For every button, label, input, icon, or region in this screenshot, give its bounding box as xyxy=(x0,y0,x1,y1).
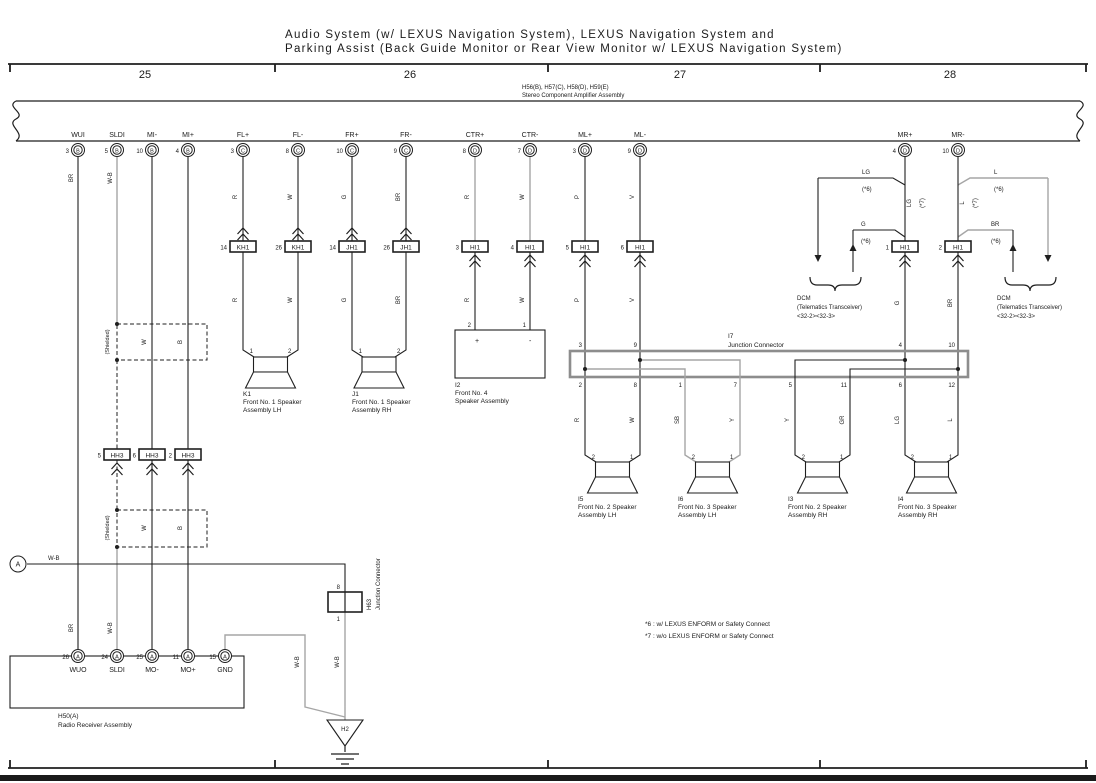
note-star6: *6 : w/ LEXUS ENFORM or Safety Connect xyxy=(645,621,770,628)
amplifier-left-tear xyxy=(13,101,19,141)
wire-color-label: W xyxy=(142,339,148,345)
amplifier-pins: WUI3B SLDI5B MI-10B MI+4B FL+3C FL-8C FR… xyxy=(66,132,966,157)
connector-label: HI1 xyxy=(900,245,911,252)
connector-5-hi1: HI15 xyxy=(566,241,598,267)
pin-num: 15 xyxy=(209,655,216,661)
amp-pin-fr-minus: FR-9C xyxy=(394,132,413,157)
pin-num: 10 xyxy=(336,149,343,155)
wire-color-label: P xyxy=(575,298,581,302)
connector-26-jh1: JH126 xyxy=(383,228,419,252)
speaker-name: Assembly RH xyxy=(352,407,392,414)
pin-num: 25 xyxy=(136,655,143,661)
speaker-ref: J1 xyxy=(352,391,359,398)
junction-pin: 8 xyxy=(634,383,638,389)
amplifier-name: Stereo Component Amplifier Assembly xyxy=(522,93,624,99)
wire-color-label: W xyxy=(142,525,148,531)
connector-label: HI1 xyxy=(470,245,481,252)
pin-name: ML- xyxy=(634,132,647,139)
wire-variant-label: (*6) xyxy=(991,239,1001,245)
speaker-pin: 2 xyxy=(692,455,696,461)
radio-name: Radio Receiver Assembly xyxy=(58,722,133,729)
wire-color-label: R xyxy=(465,194,471,199)
connector-label: HH3 xyxy=(110,453,123,460)
junction-pin: 4 xyxy=(899,343,903,349)
pin-name: MI+ xyxy=(182,132,194,139)
wire-color-label: R xyxy=(233,297,239,302)
dcm-label: (Telematics Transceiver) xyxy=(997,305,1062,311)
pin-num: 3 xyxy=(231,149,235,155)
connector-label: HH3 xyxy=(181,453,194,460)
wire-color-label: W xyxy=(288,194,294,200)
speaker-ref: I2 xyxy=(455,382,461,389)
speaker-name: Assembly LH xyxy=(243,407,282,414)
wire-color-label: V xyxy=(630,195,636,199)
connector-label: KH1 xyxy=(292,245,305,252)
speaker-i4: 2 1 I4 Front No. 3 Speaker Assembly RH xyxy=(898,455,957,519)
wire-color-label: R xyxy=(465,297,471,302)
amp-pin-mr-minus: MR-10D xyxy=(942,132,965,157)
speaker-i3: 2 1 I3 Front No. 2 Speaker Assembly RH xyxy=(788,455,848,519)
wires-black xyxy=(27,157,1013,649)
pin-num: 7 xyxy=(518,149,522,155)
speaker-pin: 1 xyxy=(730,455,734,461)
amp-pin-fl-plus: FL+3C xyxy=(231,132,250,157)
wire-color-label: W xyxy=(630,417,636,423)
connector-2-hh3: HH32 xyxy=(169,449,201,475)
junction-internal-gray xyxy=(585,360,740,462)
diagram-canvas: Audio System (w/ LEXUS Navigation System… xyxy=(0,0,1096,783)
pin-name: FR+ xyxy=(345,132,358,139)
circuit-reference-a: A xyxy=(10,556,26,572)
junction-pin: 3 xyxy=(579,343,583,349)
pin-letter: A xyxy=(223,654,227,660)
wire-color-label: L xyxy=(948,418,954,422)
pin-name: FL+ xyxy=(237,132,249,139)
connector-pin: 2 xyxy=(169,454,173,460)
junction-pin: 9 xyxy=(634,343,638,349)
wire-color-label: Y xyxy=(730,418,736,422)
wire-color-label: W-B xyxy=(108,172,114,184)
wire-color-label: G xyxy=(342,297,348,302)
wiring-diagram-page: Audio System (w/ LEXUS Navigation System… xyxy=(0,0,1096,783)
wire-color-label: G xyxy=(895,300,901,305)
bottom-border xyxy=(0,775,1096,781)
amp-pin-mr-plus: MR+4D xyxy=(893,132,913,157)
connector-5-hh3: HH35 xyxy=(98,449,130,475)
pin-name: MI- xyxy=(147,132,158,139)
pin-letter: A xyxy=(115,654,119,660)
wire-color-label: LG xyxy=(907,199,913,207)
junction-pin: 6 xyxy=(899,383,903,389)
h63-ref: H63 xyxy=(367,598,373,610)
speaker-pin: 2 xyxy=(802,455,806,461)
pin-letter: D xyxy=(528,148,532,154)
connector-4-hi1: HI14 xyxy=(511,241,543,267)
wire-color-label: Y xyxy=(785,418,791,422)
speaker-name: Front No. 3 Speaker xyxy=(678,504,737,511)
junction-internal-black xyxy=(795,360,958,462)
speaker-j1: 1 2 J1 Front No. 1 Speaker Assembly RH xyxy=(352,349,411,414)
pin-name: ML+ xyxy=(578,132,592,139)
h63-pin: 1 xyxy=(337,617,341,623)
speaker-pin: 1 xyxy=(250,349,254,355)
speaker-pin: 2 xyxy=(468,323,472,329)
pin-letter: B xyxy=(115,148,119,154)
h63-pin: 8 xyxy=(337,585,341,591)
wire-color-label: W-B xyxy=(295,656,301,668)
pin-name: CTR- xyxy=(522,132,539,139)
pin-name: FL- xyxy=(293,132,304,139)
speaker-name: Front No. 2 Speaker xyxy=(788,504,847,511)
wire-variant-label: (*7) xyxy=(973,198,979,208)
pin-name: FR- xyxy=(400,132,412,139)
junction-pin: 12 xyxy=(948,383,955,389)
wire-color-label: R xyxy=(233,194,239,199)
pin-name: GND xyxy=(217,667,233,674)
pin-num: 4 xyxy=(893,149,897,155)
connector-pin: 1 xyxy=(886,246,890,252)
pin-letter: D xyxy=(583,148,587,154)
amp-pin-ctr-minus: CTR-7D xyxy=(518,132,539,157)
pin-letter: B xyxy=(150,148,154,154)
wire-color-label: P xyxy=(575,195,581,199)
amp-pin-ctr-plus: CTR+8D xyxy=(463,132,485,157)
speaker-ref: I3 xyxy=(788,496,794,503)
connector-pin: 6 xyxy=(133,454,137,460)
connector-14-kh1: KH114 xyxy=(220,228,256,252)
pin-num: 10 xyxy=(942,149,949,155)
page-title-line1: Audio System (w/ LEXUS Navigation System… xyxy=(285,29,775,41)
junction-pin: 5 xyxy=(789,383,793,389)
column-number-27: 27 xyxy=(674,69,686,81)
connector-label: KH1 xyxy=(237,245,250,252)
junction-pin: 1 xyxy=(679,383,683,389)
junction-pin: 2 xyxy=(579,383,583,389)
pin-letter: D xyxy=(956,148,960,154)
connector-pin: 5 xyxy=(566,246,570,252)
amp-pin-mi-plus: MI+4B xyxy=(176,132,195,157)
speaker-pin: 2 xyxy=(911,455,915,461)
pin-name: MR- xyxy=(951,132,965,139)
connector-pin: 14 xyxy=(329,246,336,252)
ground-h2: H2 xyxy=(327,720,363,764)
pin-name: MR+ xyxy=(898,132,913,139)
pin-num: 24 xyxy=(101,655,108,661)
dcm-page-ref: <32-2><32-3> xyxy=(797,314,836,320)
speaker-pin: 1 xyxy=(840,455,844,461)
wire-variant-label: (*7) xyxy=(920,198,926,208)
page-title-line2: Parking Assist (Back Guide Monitor or Re… xyxy=(285,43,843,55)
amplifier-band xyxy=(16,101,1080,141)
pin-num: 3 xyxy=(66,149,70,155)
connector-pin: 14 xyxy=(220,246,227,252)
wire-color-label: B xyxy=(178,526,184,530)
pin-num: 10 xyxy=(136,149,143,155)
connector-pin: 2 xyxy=(939,246,943,252)
pin-name: SLDI xyxy=(109,132,125,139)
wire-color-label: B xyxy=(178,340,184,344)
speaker-name: Assembly LH xyxy=(678,512,717,519)
speaker-name: Assembly LH xyxy=(578,512,617,519)
wire-color-label: G xyxy=(861,222,866,228)
radio-receiver-assembly: 26AWUO 24ASLDI 25AMO- 11AMO+ 15AGND H50(… xyxy=(10,650,244,730)
connector-pin: 6 xyxy=(621,246,625,252)
wire-color-label: LG xyxy=(862,170,870,176)
pin-name: WUO xyxy=(69,667,87,674)
amp-pin-ml-minus: ML-9D xyxy=(628,132,647,157)
wire-variant-label: (*6) xyxy=(994,187,1004,193)
radio-ref: H50(A) xyxy=(58,713,79,720)
column-number-26: 26 xyxy=(404,69,416,81)
h63-junction-connector: 8 1 H63 Junction Connector xyxy=(328,558,382,623)
wire-color-label: V xyxy=(630,298,636,302)
speaker-name: Speaker Assembly xyxy=(455,398,510,405)
wire-color-label: BR xyxy=(396,295,402,304)
h63-name: Junction Connector xyxy=(376,558,382,610)
top-ruler xyxy=(8,64,1088,72)
connector-1-hi1: HI11 xyxy=(886,241,918,267)
connector-26-kh1: KH126 xyxy=(275,228,311,252)
dcm-brace xyxy=(810,277,861,291)
junction-pin: 11 xyxy=(841,383,848,389)
amp-pin-ml-plus: ML+3D xyxy=(573,132,592,157)
polarity-plus: + xyxy=(475,338,479,345)
connector-pin: 26 xyxy=(383,246,390,252)
shield-box-upper xyxy=(117,324,207,360)
wire-color-label: L xyxy=(994,170,998,176)
connector-label: HI1 xyxy=(953,245,964,252)
speaker-ref: I4 xyxy=(898,496,904,503)
speaker-ref: I5 xyxy=(578,496,584,503)
connector-6-hh3: HH36 xyxy=(133,449,165,475)
pin-letter: A xyxy=(150,654,154,660)
wire-color-label: BR xyxy=(396,192,402,201)
connector-label: JH1 xyxy=(400,245,412,252)
wire-color-label: SB xyxy=(675,416,681,424)
pin-letter: D xyxy=(903,148,907,154)
pin-letter: C xyxy=(350,148,354,154)
pin-num: 8 xyxy=(286,149,290,155)
notes: *6 : w/ LEXUS ENFORM or Safety Connect *… xyxy=(645,621,774,640)
dcm-label: DCM xyxy=(997,296,1011,302)
pin-num: 9 xyxy=(394,149,398,155)
pin-letter: C xyxy=(241,148,245,154)
wire-color-label: LG xyxy=(895,416,901,424)
speaker-name: Assembly RH xyxy=(898,512,938,519)
speaker-pin: 1 xyxy=(359,349,363,355)
pin-num: 26 xyxy=(62,655,69,661)
amp-pin-fr-plus: FR+10C xyxy=(336,132,358,157)
wire-variant-label: (*6) xyxy=(862,187,872,193)
amp-pin-mi-minus: MI-10B xyxy=(136,132,158,157)
wire-color-label: L xyxy=(960,201,966,205)
pin-num: 8 xyxy=(463,149,467,155)
junction-name: Junction Connector xyxy=(728,342,785,349)
speaker-ref: I6 xyxy=(678,496,684,503)
wire-color-label: W xyxy=(288,297,294,303)
pin-name: MO- xyxy=(145,667,159,674)
pin-letter: C xyxy=(296,148,300,154)
wire-color-label: W-B xyxy=(108,622,114,634)
pin-name: CTR+ xyxy=(466,132,484,139)
pin-name: SLDI xyxy=(109,667,125,674)
pin-num: 3 xyxy=(573,149,577,155)
pin-letter: B xyxy=(76,148,80,154)
junction-pin: 10 xyxy=(948,343,955,349)
connector-label: HH3 xyxy=(145,453,158,460)
amp-pin-fl-minus: FL-8C xyxy=(286,132,305,157)
connector-pin: 5 xyxy=(98,454,102,460)
wire-variant-label: (*6) xyxy=(861,239,871,245)
connector-label: HI1 xyxy=(635,245,646,252)
speaker-ref: K1 xyxy=(243,391,251,398)
wire-color-label: G xyxy=(342,194,348,199)
pin-name: MO+ xyxy=(180,667,195,674)
speaker-i2: 2 1 + - I2 Front No. 4 Speaker Assembly xyxy=(455,323,545,405)
column-number-25: 25 xyxy=(139,69,151,81)
pin-letter: A xyxy=(186,654,190,660)
connector-pin: 4 xyxy=(511,246,515,252)
wire-color-label: W-B xyxy=(335,656,341,668)
speaker-name: Front No. 3 Speaker xyxy=(898,504,957,511)
circuit-a-label: A xyxy=(16,562,21,569)
amp-pin-wui: WUI3B xyxy=(66,132,85,157)
wire-color-label: W-B xyxy=(48,556,60,562)
bottom-ruler xyxy=(8,760,1088,768)
junction-connector-i7: I7 Junction Connector 3 9 4 10 2 8 1 7 5… xyxy=(570,333,968,462)
speaker-name: Front No. 2 Speaker xyxy=(578,504,637,511)
connector-2-hi1: HI12 xyxy=(939,241,971,267)
dcm-right: DCM (Telematics Transceiver) <32-2><32-3… xyxy=(997,244,1062,320)
speaker-pin: 1 xyxy=(523,323,527,329)
wire-color-label: W xyxy=(520,194,526,200)
column-number-28: 28 xyxy=(944,69,956,81)
pin-letter: A xyxy=(76,654,80,660)
stereo-component-amplifier: H56(B), H57(C), H58(D), H59(E) Stereo Co… xyxy=(13,85,1083,141)
header: Audio System (w/ LEXUS Navigation System… xyxy=(8,29,1088,81)
speaker-name: Assembly RH xyxy=(788,512,828,519)
connector-pin: 26 xyxy=(275,246,282,252)
connector-3-hi1: HI13 xyxy=(456,241,488,267)
dcm-brace xyxy=(1005,277,1056,291)
wire-color-label: R xyxy=(575,417,581,422)
wire-color-label: BR xyxy=(69,623,75,632)
shielded-label: (Shielded) xyxy=(105,515,111,540)
ground-ref: H2 xyxy=(341,727,349,733)
amplifier-right-tear xyxy=(1077,101,1083,141)
connector-label: HI1 xyxy=(580,245,591,252)
connector-label: HI1 xyxy=(525,245,536,252)
wire-color-label: GR xyxy=(840,415,846,425)
shielded-label: (Shielded) xyxy=(105,329,111,354)
amp-pin-sldi: SLDI5B xyxy=(105,132,125,157)
speaker-pin: 2 xyxy=(592,455,596,461)
shield-box-lower xyxy=(117,510,207,547)
pin-num: 5 xyxy=(105,149,109,155)
dcm-left: DCM (Telematics Transceiver) <32-2><32-3… xyxy=(797,244,862,320)
pin-letter: D xyxy=(473,148,477,154)
wire-color-label: BR xyxy=(948,298,954,307)
pin-num: 9 xyxy=(628,149,632,155)
note-star7: *7 : w/o LEXUS ENFORM or Safety Connect xyxy=(645,633,774,640)
pin-num: 4 xyxy=(176,149,180,155)
pin-letter: B xyxy=(186,148,190,154)
wire-color-label: BR xyxy=(69,173,75,182)
connector-pin: 3 xyxy=(456,246,460,252)
pin-name: WUI xyxy=(71,132,85,139)
pin-num: 11 xyxy=(173,655,180,661)
speaker-i5: 2 1 I5 Front No. 2 Speaker Assembly LH xyxy=(578,455,638,519)
junction-pin: 7 xyxy=(734,383,738,389)
ground-symbol xyxy=(331,746,359,764)
dcm-label: DCM xyxy=(797,296,811,302)
speaker-name: Front No. 4 xyxy=(455,390,488,397)
wire-color-label: W xyxy=(520,297,526,303)
speaker-k1: 1 2 K1 Front No. 1 Speaker Assembly LH xyxy=(243,349,302,414)
speaker-name: Front No. 1 Speaker xyxy=(243,399,302,406)
dcm-label: (Telematics Transceiver) xyxy=(797,305,862,311)
amplifier-codes: H56(B), H57(C), H58(D), H59(E) xyxy=(522,85,609,91)
junction-ref: I7 xyxy=(728,333,734,340)
footer xyxy=(0,760,1096,781)
connector-6-hi1: HI16 xyxy=(621,241,653,267)
connector-14-jh1: JH114 xyxy=(329,228,365,252)
speaker-pin: 1 xyxy=(630,455,634,461)
connector-label: JH1 xyxy=(346,245,358,252)
pin-letter: C xyxy=(404,148,408,154)
speaker-name: Front No. 1 Speaker xyxy=(352,399,411,406)
pin-letter: D xyxy=(638,148,642,154)
wire-color-label: BR xyxy=(991,222,1000,228)
dcm-page-ref: <32-2><32-3> xyxy=(997,314,1036,320)
speaker-i6: 2 1 I6 Front No. 3 Speaker Assembly LH xyxy=(678,455,738,519)
